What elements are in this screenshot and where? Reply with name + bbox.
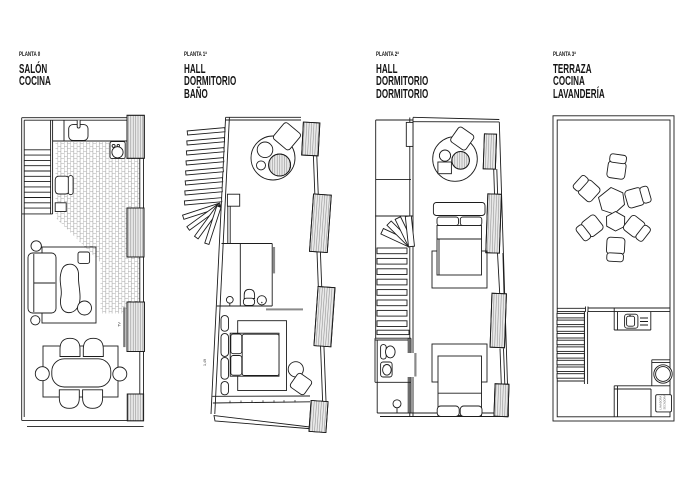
svg-text:LAVADORA: LAVADORA: [659, 395, 663, 409]
svg-text:1,49: 1,49: [203, 359, 207, 366]
svg-text:SECADORA: SECADORA: [663, 395, 667, 410]
svg-text:TV: TV: [117, 322, 122, 327]
